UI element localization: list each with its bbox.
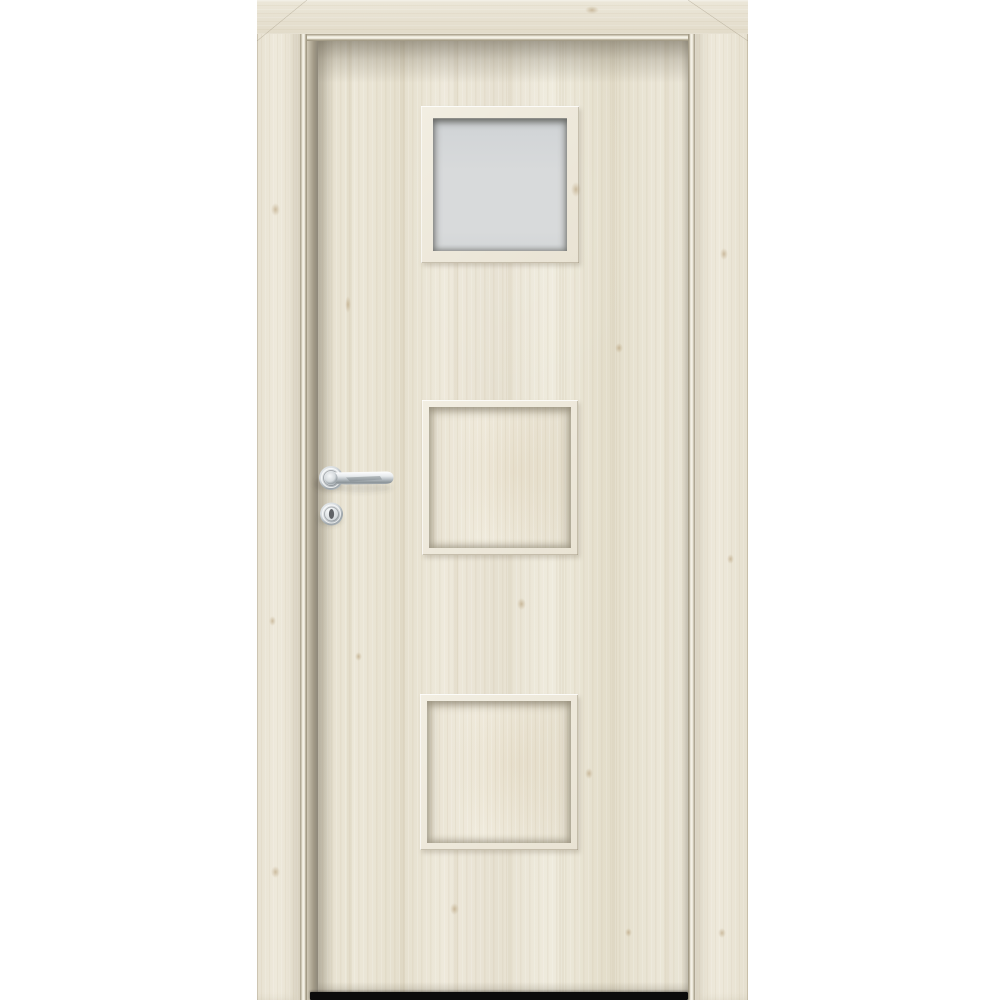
handle-lever xyxy=(325,472,394,485)
door-leaf xyxy=(318,41,688,992)
product-photo-door xyxy=(0,0,1000,1000)
inset-panel-bottom-field xyxy=(427,701,571,843)
frame-bead-molding-top xyxy=(300,34,695,41)
frosted-glass xyxy=(433,118,567,251)
glazed-panel-top xyxy=(421,106,579,263)
leaf-top-shadow xyxy=(318,41,688,83)
keyhole-icon xyxy=(329,509,334,519)
door-frame xyxy=(257,0,748,1000)
under-door-gap xyxy=(310,992,688,1000)
leaf-bottom-shadow xyxy=(318,982,688,992)
keyhole-escutcheon xyxy=(320,503,343,526)
leaf-right-shadow xyxy=(682,41,688,992)
frame-head-architrave xyxy=(257,0,748,34)
frame-bead-molding-right xyxy=(688,34,695,1000)
door-handle xyxy=(316,450,406,540)
inset-panel-bottom xyxy=(420,694,578,850)
inset-panel-middle-field xyxy=(429,407,571,548)
inset-panel-middle xyxy=(422,400,578,555)
frame-bead-molding-left xyxy=(300,34,307,1000)
frame-right-architrave xyxy=(695,0,748,1000)
frame-left-architrave xyxy=(257,0,300,1000)
